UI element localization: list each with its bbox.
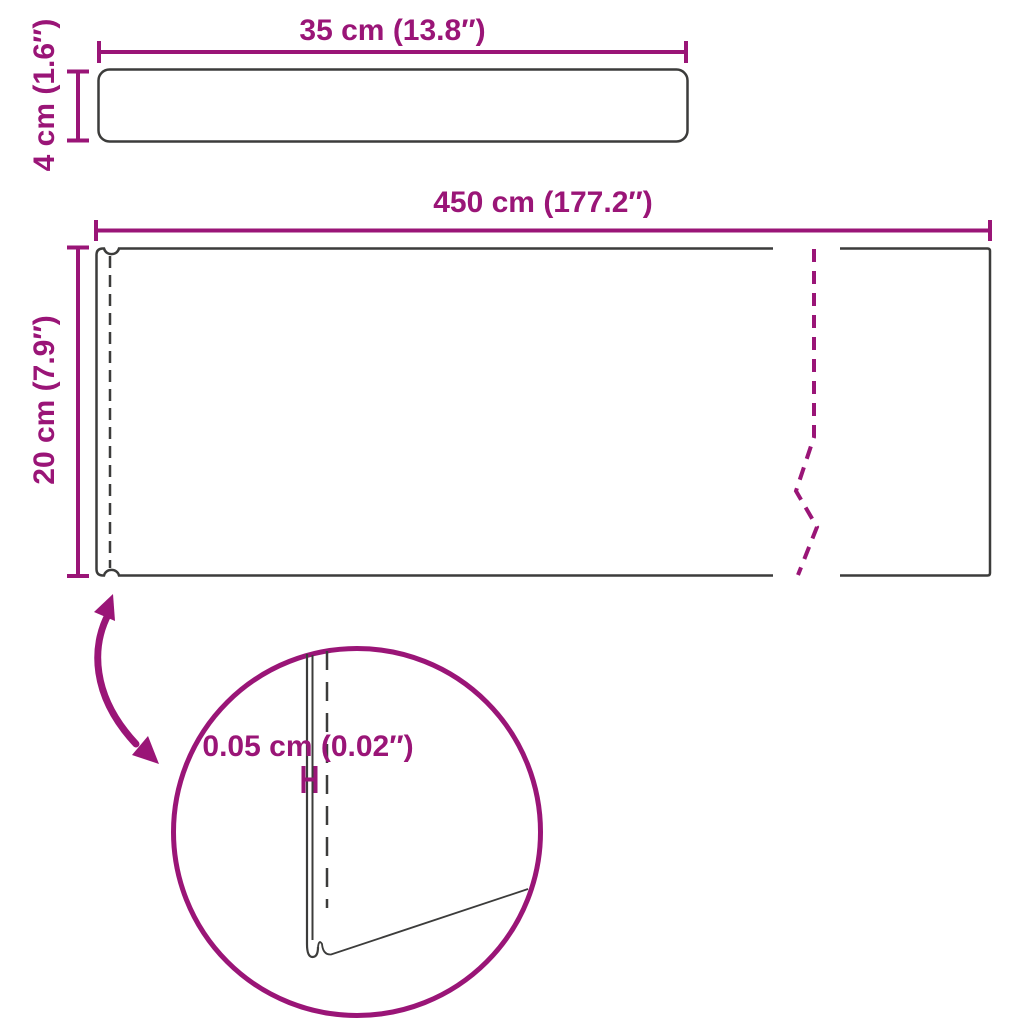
mat-height-dimension-line bbox=[67, 248, 89, 577]
bar-outline bbox=[99, 70, 688, 142]
detail-edge-lines bbox=[307, 654, 528, 957]
bar-height-dimension-line bbox=[67, 72, 89, 141]
mat-outline-left-section bbox=[97, 249, 774, 576]
mat-break-zigzag-line bbox=[796, 249, 817, 575]
mat-height-label: 20 cm (7.9″) bbox=[29, 315, 61, 484]
thickness-label: 0.05 cm (0.02″) bbox=[202, 731, 413, 763]
magnify-arrow-icon bbox=[94, 594, 159, 764]
mat-width-label: 450 cm (177.2″) bbox=[96, 187, 990, 219]
mat-outline-right-section bbox=[840, 249, 990, 576]
dimension-diagram: 35 cm (13.8″) 4 cm (1.6″) 450 cm (177.2″… bbox=[0, 0, 1024, 1024]
diagram-shapes-canvas bbox=[0, 0, 1024, 1024]
bar-height-label: 4 cm (1.6″) bbox=[29, 19, 61, 172]
bar-width-label: 35 cm (13.8″) bbox=[99, 15, 686, 47]
detail-magnifier-circle bbox=[174, 649, 541, 1016]
mat-width-dimension-line bbox=[96, 220, 990, 241]
thickness-gauge-icon bbox=[304, 766, 316, 793]
